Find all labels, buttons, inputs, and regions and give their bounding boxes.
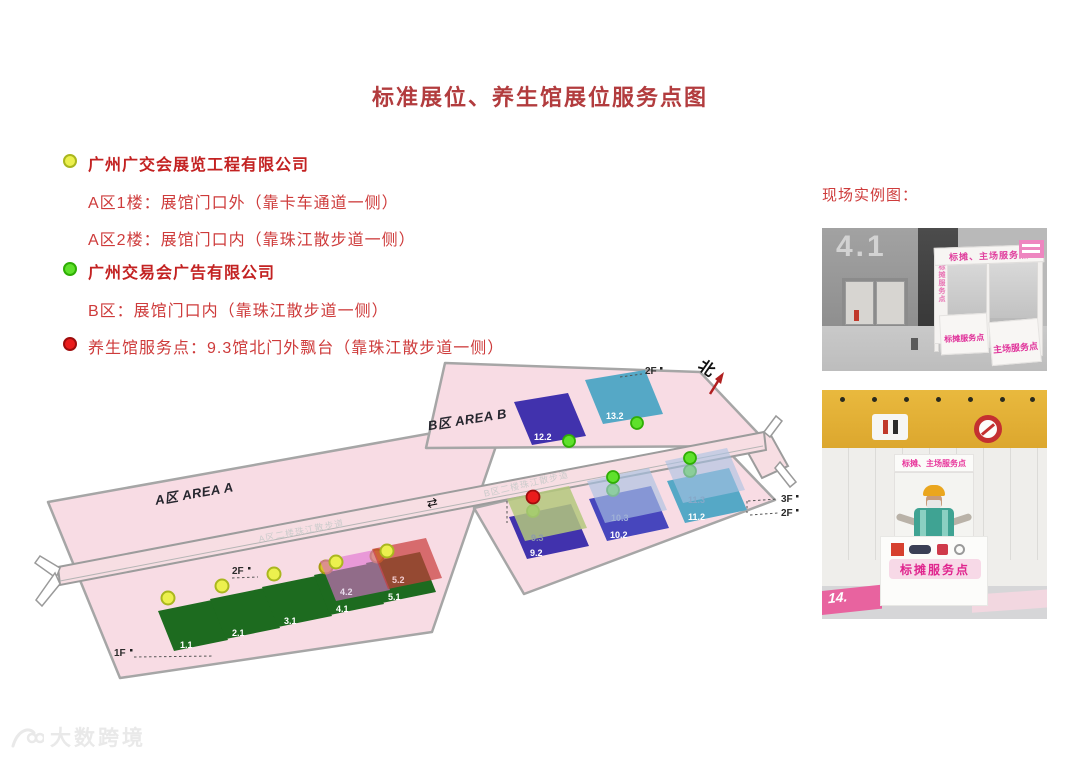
- floor-marker-b-top-2f-square: [660, 367, 663, 370]
- hall-label-9-3: 9.3: [531, 533, 544, 543]
- restroom-female-icon: [883, 420, 888, 434]
- service-dot-green-10a: [607, 471, 619, 483]
- area-a-shape: [48, 420, 505, 678]
- photo1-door-frame: [842, 278, 908, 328]
- ring-logo: [954, 544, 965, 555]
- service-dot-yellow-5: [381, 545, 394, 558]
- watermark: 大数跨境: [10, 722, 146, 752]
- photo1-booth-side-text: 标摊服务点: [936, 263, 946, 303]
- hall-label-10-2: 10.2: [610, 530, 628, 540]
- photo1-badge-bar: [1022, 250, 1040, 253]
- photo1-fire-extinguisher: [854, 310, 859, 321]
- watermark-logo: [10, 724, 44, 750]
- hall-label-5-2: 5.2: [392, 575, 405, 585]
- page-title: 标准展位、养生馆展位服务点图: [0, 80, 1080, 112]
- service-dot-yellow-3: [268, 568, 281, 581]
- photo2-wall-dot: [904, 397, 909, 402]
- photo2-vest-stripe: [942, 510, 948, 536]
- photo1-hall-number: 4.1: [836, 230, 887, 264]
- no-smoking-sign: [974, 415, 1002, 443]
- watermark-text: 大数跨境: [50, 722, 146, 752]
- photo2-vest-stripe: [920, 510, 926, 536]
- floor-marker-3f-square: [796, 495, 799, 498]
- walkway-right-fork-up: [764, 416, 782, 437]
- service-dot-green-13: [631, 417, 643, 429]
- photo2-face-mask: [927, 500, 941, 508]
- service-dot-yellow-2: [216, 580, 229, 593]
- photo1-door-right: [876, 281, 905, 325]
- service-dot-yellow-4: [330, 556, 343, 569]
- photo1-booth-logo-badge: [1019, 240, 1044, 258]
- photo2-wall-dot: [1030, 397, 1035, 402]
- hall-label-2-1: 2.1: [232, 628, 245, 638]
- photo1-counter-left: 标摊服务点: [939, 313, 989, 355]
- legend-company1-detail-1: A区1楼：展馆门口外（靠卡车通道一侧）: [88, 189, 399, 213]
- example-photo-1: 4.1 标摊服务点 标摊、主场服务点 标摊服务点 主场服务点: [822, 228, 1047, 371]
- service-dot-green-12: [563, 435, 575, 447]
- hall-label-4-1: 4.1: [336, 604, 349, 614]
- legend-company2-detail-1: B区：展馆门口内（靠珠江散步道一侧）: [88, 297, 389, 321]
- photo1-counter-left-text: 标摊服务点: [941, 332, 988, 345]
- photo2-hard-hat: [923, 485, 945, 496]
- service-dot-red: [527, 491, 540, 504]
- hall-label-5-1: 5.1: [388, 592, 401, 602]
- photo2-wall-dot: [968, 397, 973, 402]
- floor-marker-2f-dashes: [750, 513, 778, 515]
- photo2-booth-banner: 标摊、主场服务点: [894, 454, 974, 472]
- floor-marker-a-2f: 2F: [232, 566, 244, 577]
- hall-label-13-2: 13.2: [606, 411, 624, 421]
- hall-label-1-1: 1.1: [180, 640, 193, 650]
- swoosh-logo: [909, 545, 931, 554]
- example-photo-2: 标摊、主场服务点 14. 标摊服务点: [822, 390, 1047, 619]
- legend-company-1: 广州广交会展览工程有限公司: [88, 151, 309, 175]
- photo1-counter-right: 主场服务点: [988, 318, 1042, 366]
- floor-marker-1f: 1F: [114, 648, 126, 659]
- restroom-sign: [872, 414, 908, 440]
- examples-heading: 现场实例图：: [822, 184, 918, 205]
- legend-dot-yellow: [63, 154, 77, 168]
- photo2-counter-text: 标摊服务点: [900, 561, 970, 578]
- hall-label-3-1: 3.1: [284, 616, 297, 626]
- floor-marker-2f: 2F: [781, 508, 793, 519]
- hall-label-9-2: 9.2: [530, 548, 543, 558]
- service-dot-yellow-1: [162, 592, 175, 605]
- page: 标准展位、养生馆展位服务点图 广州广交会展览工程有限公司 A区1楼：展馆门口外（…: [0, 0, 1080, 765]
- photo1-badge-bar: [1022, 244, 1040, 247]
- restroom-male-icon: [893, 420, 898, 434]
- legend-company-2: 广州交易会广告有限公司: [88, 259, 275, 283]
- service-dot-green-11a: [684, 452, 696, 464]
- photo2-counter: 标摊服务点: [880, 536, 988, 606]
- venue-map: A区 AREA A B区 AREA B 12.2 13.2 A区二楼珠江散步道 …: [0, 330, 810, 720]
- photo2-wall-dot: [872, 397, 877, 402]
- hall-label-12-2: 12.2: [534, 432, 552, 442]
- legend-dot-green: [63, 262, 77, 276]
- walkway-left-fork-down: [36, 573, 60, 606]
- floor-marker-3f: 3F: [781, 494, 793, 505]
- floor-marker-1f-square: [130, 649, 133, 652]
- floor-marker-2f-square: [796, 509, 799, 512]
- photo2-booth-banner-text: 标摊、主场服务点: [902, 458, 966, 469]
- photo2-counter-band: 标摊服务点: [889, 559, 981, 579]
- hall-label-10-3: 10.3: [611, 513, 629, 523]
- legend-company1-detail-2: A区2楼：展馆门口内（靠珠江散步道一侧）: [88, 226, 416, 250]
- photo1-booth-banner-text: 标摊、主场服务点: [949, 247, 1029, 263]
- photo1-door-left: [845, 281, 874, 325]
- no-smoking-slash: [981, 423, 995, 436]
- photo2-person-vest: [914, 508, 954, 536]
- floor-marker-a-2f-square: [248, 567, 251, 570]
- photo1-bin: [911, 338, 918, 350]
- square-logo: [937, 544, 948, 555]
- hall-label-11-2: 11.2: [688, 512, 705, 522]
- hall-label-4-2: 4.2: [340, 587, 353, 597]
- photo1-counter-right-text: 主场服务点: [991, 339, 1040, 356]
- photo2-wall-dot: [936, 397, 941, 402]
- cfte-logo: [891, 543, 904, 556]
- photo2-yellow-wall: [822, 390, 1047, 448]
- floor-marker-b-top-2f: 2F: [645, 366, 657, 377]
- photo2-wall-dot: [840, 397, 845, 402]
- hall-label-11-3: 11.3: [688, 495, 705, 505]
- photo2-wall-dot: [1000, 397, 1005, 402]
